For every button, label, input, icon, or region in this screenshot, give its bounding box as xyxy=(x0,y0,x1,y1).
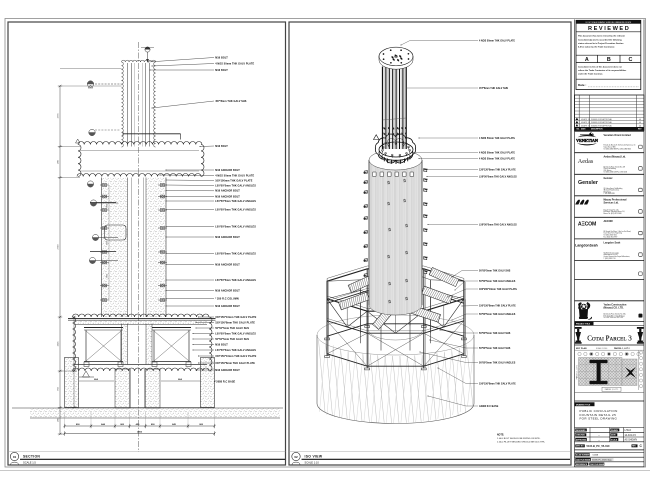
svg-text:M16 BOLT: M16 BOLT xyxy=(215,56,228,59)
svg-text:M16 ANCHOR BOLT: M16 ANCHOR BOLT xyxy=(215,305,240,308)
svg-text:SCALE 1:5: SCALE 1:5 xyxy=(23,460,36,464)
svg-text:DATE: DATE xyxy=(611,434,617,437)
svg-text:L50*50*5mm THK GALV ANGLES: L50*50*5mm THK GALV ANGLES xyxy=(215,332,256,335)
svg-text:L50*50*5mm THK GALV ANGLES: L50*50*5mm THK GALV ANGLES xyxy=(479,223,517,226)
svg-text:02: 02 xyxy=(294,455,298,459)
svg-text:457*8mm THK GALV SHS: 457*8mm THK GALV SHS xyxy=(215,100,247,103)
svg-text:1. ALL BOLT SHOULD BE FIXING O: 1. ALL BOLT SHOULD BE FIXING ON SITE. xyxy=(497,437,541,440)
svg-text:L50*50*5mm THK GALV ANGLES: L50*50*5mm THK GALV ANGLES xyxy=(215,225,256,228)
svg-text:NOTE:: NOTE: xyxy=(497,435,504,437)
svg-text:14 AUG 15: 14 AUG 15 xyxy=(625,434,637,437)
svg-text:COTAI PARCEL 3: COTAI PARCEL 3 xyxy=(587,334,632,342)
svg-text:150*150*8mm THK GALV PLATE: 150*150*8mm THK GALV PLATE xyxy=(215,362,255,365)
svg-text:SECTION: SECTION xyxy=(23,455,40,459)
svg-text:50*50*5mm THK GALV ANGLES: 50*50*5mm THK GALV ANGLES xyxy=(479,361,516,364)
svg-text:M16 ANCHOR BOLT: M16 ANCHOR BOLT xyxy=(215,195,240,198)
svg-text:This document has been revised: This document has been revised by the re… xyxy=(578,35,625,38)
svg-text:CHECKED: CHECKED xyxy=(576,435,586,437)
svg-text:Aedas (Macau) Ltd.: Aedas (Macau) Ltd. xyxy=(604,155,627,158)
svg-text:Gensler: Gensler xyxy=(578,180,599,186)
svg-text:T. 852.2893.3998: T. 852.2893.3998 xyxy=(604,193,615,195)
svg-text:M16 ANCHOR BOLT: M16 ANCHOR BOLT xyxy=(215,289,240,292)
svg-text:ISO VIEW: ISO VIEW xyxy=(305,455,323,459)
svg-text:50*50*5mm THK GALV SHS: 50*50*5mm THK GALV SHS xyxy=(479,269,511,272)
svg-text:M16 ANCHOR BOLT: M16 ANCHOR BOLT xyxy=(215,369,240,372)
svg-text:M16 BOLT: M16 BOLT xyxy=(215,69,228,72)
svg-text:21/F, Macau: 21/F, Macau xyxy=(604,170,612,172)
svg-text:VENETIAN: VENETIAN xyxy=(576,138,599,143)
svg-text:4 NOS 50mm THK GALV PLATE: 4 NOS 50mm THK GALV PLATE xyxy=(479,39,515,42)
svg-text:4 NOS 50mm THK GALV PLATE: 4 NOS 50mm THK GALV PLATE xyxy=(479,137,515,140)
svg-text:Venetian Orient Limited: Venetian Orient Limited xyxy=(604,134,632,137)
svg-text:100*100mm THK GALV PLATE: 100*100mm THK GALV PLATE xyxy=(215,179,253,182)
svg-text:FOR STEEL DRAWING: FOR STEEL DRAWING xyxy=(580,417,618,421)
svg-text:M16 BOLT: M16 BOLT xyxy=(215,145,228,148)
svg-text:NO.: NO. xyxy=(577,129,581,131)
svg-text:5115B: 5115B xyxy=(593,455,599,457)
svg-text:150*150*8mm THK GALV PLATE: 150*150*8mm THK GALV PLATE xyxy=(479,382,516,385)
svg-text:2700: 2700 xyxy=(58,244,60,250)
svg-text:M16 BOLT: M16 BOLT xyxy=(215,343,228,346)
svg-text:50*50*5mm THK GALV ANGLES: 50*50*5mm THK GALV ANGLES xyxy=(479,280,516,283)
svg-text:Tsuen Wan, N.T., Hong Kong: Tsuen Wan, N.T., Hong Kong xyxy=(604,233,623,235)
svg-text:01: 01 xyxy=(13,455,17,459)
svg-text:Tel: 2837 2266 Fax: 2837 2267: Tel: 2837 2266 Fax: 2837 2267 xyxy=(604,317,624,319)
svg-text:CAD FILE NAME: CAD FILE NAME xyxy=(576,458,591,461)
svg-text:PARCEL 1, LOT 1: PARCEL 1, LOT 1 xyxy=(576,365,579,379)
svg-text:150*150*8mm THK GALV PLATE: 150*150*8mm THK GALV PLATE xyxy=(215,321,255,324)
svg-text:L50*50*5mm THK GALV ANGLES: L50*50*5mm THK GALV ANGLES xyxy=(215,252,256,255)
svg-text:03 APR 15: 03 APR 15 xyxy=(581,118,590,121)
svg-text:C: C xyxy=(628,57,632,63)
svg-text:5115-B_PC_55-010: 5115-B_PC_55-010 xyxy=(587,444,610,448)
svg-text:1325: 1325 xyxy=(58,341,60,347)
svg-text:4 NOS 50mm THK GALV PLATE: 4 NOS 50mm THK GALV PLATE xyxy=(215,62,254,65)
svg-text:150*150*10mm THK GALV PLATE: 150*150*10mm THK GALV PLATE xyxy=(215,355,256,358)
svg-text:Consultants(s) and is accorded: Consultants(s) and is accorded the follo… xyxy=(578,38,622,41)
svg-text:150*150*10mm THK GALV PLATE: 150*150*10mm THK GALV PLATE xyxy=(215,316,256,319)
svg-text:DRAWING TITLE: DRAWING TITLE xyxy=(576,403,591,406)
svg-text:03 APR 15: 03 APR 15 xyxy=(581,124,590,127)
svg-text:China Law Building: China Law Building xyxy=(604,168,617,170)
svg-text:T. (853) 2833 1710: T. (853) 2833 1710 xyxy=(604,258,616,260)
svg-text:50*50*5mm THK GALV SHS: 50*50*5mm THK GALV SHS xyxy=(479,332,511,335)
svg-text:2/F, Hong Kong Club Building: 2/F, Hong Kong Club Building xyxy=(604,188,623,190)
svg-text:(Macau) CO. LTD.: (Macau) CO. LTD. xyxy=(604,307,624,310)
svg-text:status referred to in Projec: status referred to in Project Procedure … xyxy=(578,42,624,45)
svg-text:LH/LO: LH/LO xyxy=(625,430,632,432)
svg-text:L50*50*5mm THK GALV ANGLES: L50*50*5mm THK GALV ANGLES xyxy=(215,200,256,203)
svg-text:400*200*16mm THK GALV PLATE: 400*200*16mm THK GALV PLATE xyxy=(479,288,518,291)
svg-text:4 NOS 50mm THK GALV PLATE: 4 NOS 50mm THK GALV PLATE xyxy=(215,174,254,177)
svg-text:Langdon Seah: Langdon Seah xyxy=(604,242,621,245)
svg-text:ISSUED FOR APPROVAL: ISSUED FOR APPROVAL xyxy=(591,121,612,124)
svg-text:Gensler: Gensler xyxy=(604,177,613,180)
svg-text:M16 ANCHOR BOLT: M16 ANCHOR BOLT xyxy=(215,190,240,193)
svg-text:Macau Tel: (853) 2875 3088: Macau Tel: (853) 2875 3088 xyxy=(604,213,622,215)
svg-text:Rua de Xangai No. 175: Rua de Xangai No. 175 xyxy=(604,209,619,211)
svg-text:PARCEL 1, LOT 2: PARCEL 1, LOT 2 xyxy=(614,347,630,350)
svg-text:R E V I E W E D: R E V I E W E D xyxy=(588,26,629,32)
svg-text:KEY PLAN: KEY PLAN xyxy=(576,347,587,350)
svg-text:Services Ltd.: Services Ltd. xyxy=(604,202,619,205)
svg-text:DESCRIPTION: DESCRIPTION xyxy=(591,129,603,131)
svg-text:Tel: (852) 3922 9000: Tel: (852) 3922 9000 xyxy=(604,235,617,237)
svg-text:AECOM: AECOM xyxy=(604,220,613,223)
svg-text:50*50*5mm THK GALV SHS: 50*50*5mm THK GALV SHS xyxy=(215,338,249,341)
svg-text:L50*50*5mm THK GALV ANGLES: L50*50*5mm THK GALV ANGLES xyxy=(215,208,256,211)
svg-text:DESIGNED: DESIGNED xyxy=(576,430,586,432)
svg-text:5.4 for action by the Trade Co: 5.4 for action by the Trade Contractor. xyxy=(578,46,615,49)
svg-text:L50*50*5mm THK GALV ANGLES: L50*50*5mm THK GALV ANGLES xyxy=(479,175,517,178)
svg-text:L50*50*5mm THK GALV ANGLES: L50*50*5mm THK GALV ANGLES xyxy=(215,279,256,282)
svg-text:M16 ANCHOR BOLT: M16 ANCHOR BOLT xyxy=(215,263,240,266)
svg-text:ACAD NUMBER: ACAD NUMBER xyxy=(576,454,590,457)
svg-text:Fax: (852) 3922 9797: Fax: (852) 3922 9797 xyxy=(604,236,618,238)
svg-text:SCALE: SCALE xyxy=(611,438,618,441)
svg-text:457*8mm THK GALV SHS: 457*8mm THK GALV SHS xyxy=(479,87,508,90)
svg-text:CAD FILE NAME: CAD FILE NAME xyxy=(590,463,605,466)
svg-text:APPROVED: APPROVED xyxy=(576,438,587,441)
svg-text:Tel: (853) 2833 1088 Fax: 283: Tel: (853) 2833 1088 Fax: 2833 1033 xyxy=(604,172,628,174)
svg-text:*2088 R.C BASE: *2088 R.C BASE xyxy=(215,380,235,383)
svg-text:4 NOS 50mm THK GALV PLATE: 4 NOS 50mm THK GALV PLATE xyxy=(479,157,515,160)
svg-text:1776: 1776 xyxy=(58,113,60,119)
svg-text:A: A xyxy=(585,57,589,63)
svg-text:L50*50*5mm THK GALV ANGLES: L50*50*5mm THK GALV ANGLES xyxy=(215,349,256,352)
svg-text:50*50*5mm THK GALV SHS: 50*50*5mm THK GALV SHS xyxy=(479,347,511,350)
svg-text:120*120*8mm THK GALV PLATE: 120*120*8mm THK GALV PLATE xyxy=(479,168,516,171)
svg-text:DWG NO: DWG NO xyxy=(576,446,584,448)
svg-text:ISSUED FOR APPROVAL: ISSUED FOR APPROVAL xyxy=(591,118,612,121)
svg-text:* 350 R.C COLUMN: * 350 R.C COLUMN xyxy=(215,297,239,300)
svg-text:B: B xyxy=(607,57,611,63)
svg-text:50*50*5mm THK GALV ANGLES: 50*50*5mm THK GALV ANGLES xyxy=(479,313,516,316)
svg-text:150*150*8mm THK GALV PLATE: 150*150*8mm THK GALV PLATE xyxy=(479,304,516,307)
svg-text:M16 ANCHOR BOLT: M16 ANCHOR BOLT xyxy=(215,169,240,172)
svg-text:relieve the Trade Contractor o: relieve the Trade Contractor of its resp… xyxy=(578,69,627,72)
svg-text:Aedas: Aedas xyxy=(578,158,594,165)
svg-text:2. ALL FILLET WELDED SHOULD BE: 2. ALL FILLET WELDED SHOULD BE 6mm THK. xyxy=(497,440,545,443)
svg-text:AΞCOM: AΞCOM xyxy=(578,221,596,227)
svg-text:DRAWN: DRAWN xyxy=(611,429,618,432)
svg-text:Tel: (853) 2882 8888 Fax: (: Tel: (853) 2882 8888 Fax: (853) 2882 866… xyxy=(604,148,632,150)
svg-text:Consultant review of this docu: Consultant review of this document does … xyxy=(578,65,622,68)
svg-text:under the Trade Contract.: under the Trade Contract. xyxy=(578,73,603,76)
svg-text:REFERENCE: REFERENCE xyxy=(576,464,588,466)
svg-text:4 NOS 50mm THK GALV PLATE: 4 NOS 50mm THK GALV PLATE xyxy=(479,151,515,154)
svg-text:Hong Kong: Hong Kong xyxy=(604,191,611,193)
svg-text:M16 ANCHOR BOLT: M16 ANCHOR BOLT xyxy=(215,236,240,239)
svg-text:A2990 R.C BASE: A2990 R.C BASE xyxy=(479,405,499,408)
svg-text:50*50*5mm THK GALV SHS: 50*50*5mm THK GALV SHS xyxy=(215,327,249,330)
svg-text:L50*50*5mm THK GALV ANGLES: L50*50*5mm THK GALV ANGLES xyxy=(215,184,256,187)
svg-text:Date :: Date : xyxy=(578,83,586,87)
svg-text:AS SHOWN: AS SHOWN xyxy=(625,439,638,442)
svg-text:SCALE 1:2000: SCALE 1:2000 xyxy=(596,347,607,350)
svg-text:5115B_PC_55010.dwg: 5115B_PC_55010.dwg xyxy=(592,459,611,461)
svg-text:SCALE 1:10: SCALE 1:10 xyxy=(305,460,320,464)
svg-text:ISSUED FOR APPROVAL: ISSUED FOR APPROVAL xyxy=(591,124,612,127)
svg-text:PARCEL 1, LOT 1: PARCEL 1, LOT 1 xyxy=(605,388,619,391)
svg-text:2892: 2892 xyxy=(137,431,143,433)
svg-text:03 APR 15: 03 APR 15 xyxy=(581,121,590,124)
svg-text:LangdonSeah: LangdonSeah xyxy=(575,243,597,247)
